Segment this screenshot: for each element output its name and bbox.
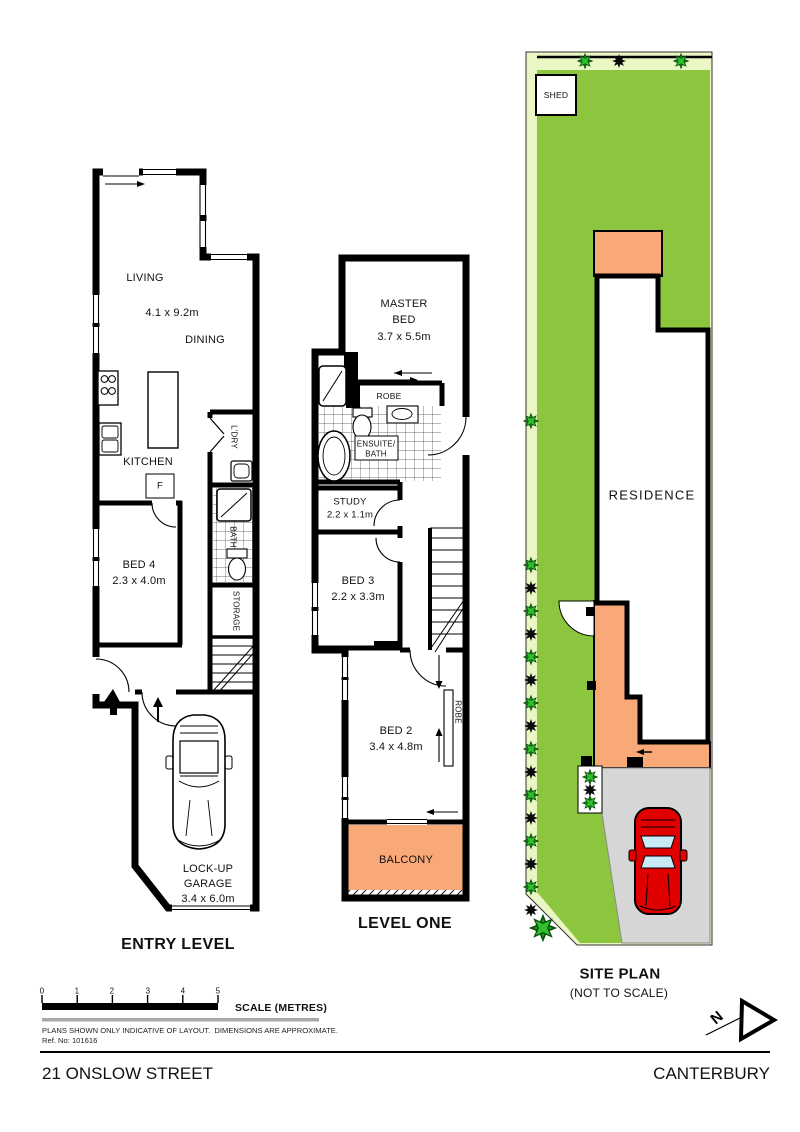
plan-graphics bbox=[0, 0, 800, 1132]
scale-tick-2: 2 bbox=[110, 987, 115, 996]
room-label-balcony: BALCONY bbox=[379, 854, 433, 866]
garage-car-icon bbox=[166, 715, 232, 849]
room-label-storage: STORAGE bbox=[232, 591, 241, 631]
scale-tick-5: 5 bbox=[216, 987, 221, 996]
room-label-bath: BATH bbox=[229, 526, 238, 548]
room-dims-living: 4.1 x 9.2m bbox=[145, 307, 198, 319]
fridge-label: F bbox=[157, 481, 163, 492]
room-label-dining: DINING bbox=[185, 334, 225, 346]
room-label-robe: ROBE bbox=[377, 391, 402, 401]
floor-plan-page: LIVING 4.1 x 9.2m DINING KITCHEN F L'DRY… bbox=[0, 0, 800, 1132]
room-label-bed4: BED 4 bbox=[123, 559, 156, 571]
room-label-bed2: BED 2 bbox=[380, 725, 413, 737]
deck-top bbox=[594, 231, 662, 276]
room-label-kitchen: KITCHEN bbox=[123, 456, 173, 468]
room-label-ensuite-1: ENSUITE/ bbox=[357, 440, 396, 449]
site-plan-title: SITE PLAN bbox=[579, 966, 660, 983]
room-dims-study: 2.2 x 1.1m bbox=[327, 510, 373, 521]
shed-label: SHED bbox=[544, 90, 568, 100]
room-label-robe2: ROBE bbox=[454, 700, 463, 723]
room-label-garage-1: LOCK-UP bbox=[183, 863, 233, 875]
scale-tick-3: 3 bbox=[146, 987, 151, 996]
room-dims-master: 3.7 x 5.5m bbox=[377, 331, 430, 343]
room-label-living: LIVING bbox=[126, 272, 163, 284]
room-dims-bed4: 2.3 x 4.0m bbox=[112, 575, 165, 587]
residence-label: RESIDENCE bbox=[609, 488, 696, 503]
room-label-garage-2: GARAGE bbox=[184, 878, 232, 890]
footer-divider bbox=[40, 1051, 770, 1053]
room-label-bed3: BED 3 bbox=[342, 575, 375, 587]
room-label-laundry: L'DRY bbox=[230, 425, 239, 449]
level-one-title: LEVEL ONE bbox=[358, 915, 452, 933]
room-dims-garage: 3.4 x 6.0m bbox=[181, 893, 234, 905]
site-car-icon bbox=[629, 808, 687, 914]
disclaimer-text: PLANS SHOWN ONLY INDICATIVE OF LAYOUT. D… bbox=[42, 1026, 338, 1035]
scale-tick-0: 0 bbox=[40, 987, 45, 996]
room-label-ensuite-2: BATH bbox=[365, 450, 387, 459]
room-label-master-1: MASTER bbox=[380, 298, 427, 310]
scale-tick-4: 4 bbox=[181, 987, 186, 996]
scale-tick-1: 1 bbox=[75, 987, 80, 996]
room-label-master-2: BED bbox=[392, 314, 415, 326]
reference-number: Ref. No: 101616 bbox=[42, 1036, 97, 1045]
room-dims-bed2: 3.4 x 4.8m bbox=[369, 741, 422, 753]
room-dims-bed3: 2.2 x 3.3m bbox=[331, 591, 384, 603]
site-plan-subtitle: (NOT TO SCALE) bbox=[570, 986, 668, 1000]
footer-street-address: 21 ONSLOW STREET bbox=[42, 1064, 213, 1084]
entry-level-title: ENTRY LEVEL bbox=[121, 936, 235, 954]
footer-suburb: CANTERBURY bbox=[653, 1064, 770, 1084]
balcony-hatch bbox=[349, 890, 463, 898]
scale-bar-label: SCALE (METRES) bbox=[235, 1002, 327, 1014]
room-label-study: STUDY bbox=[333, 497, 366, 508]
level-one-plan bbox=[310, 258, 471, 898]
